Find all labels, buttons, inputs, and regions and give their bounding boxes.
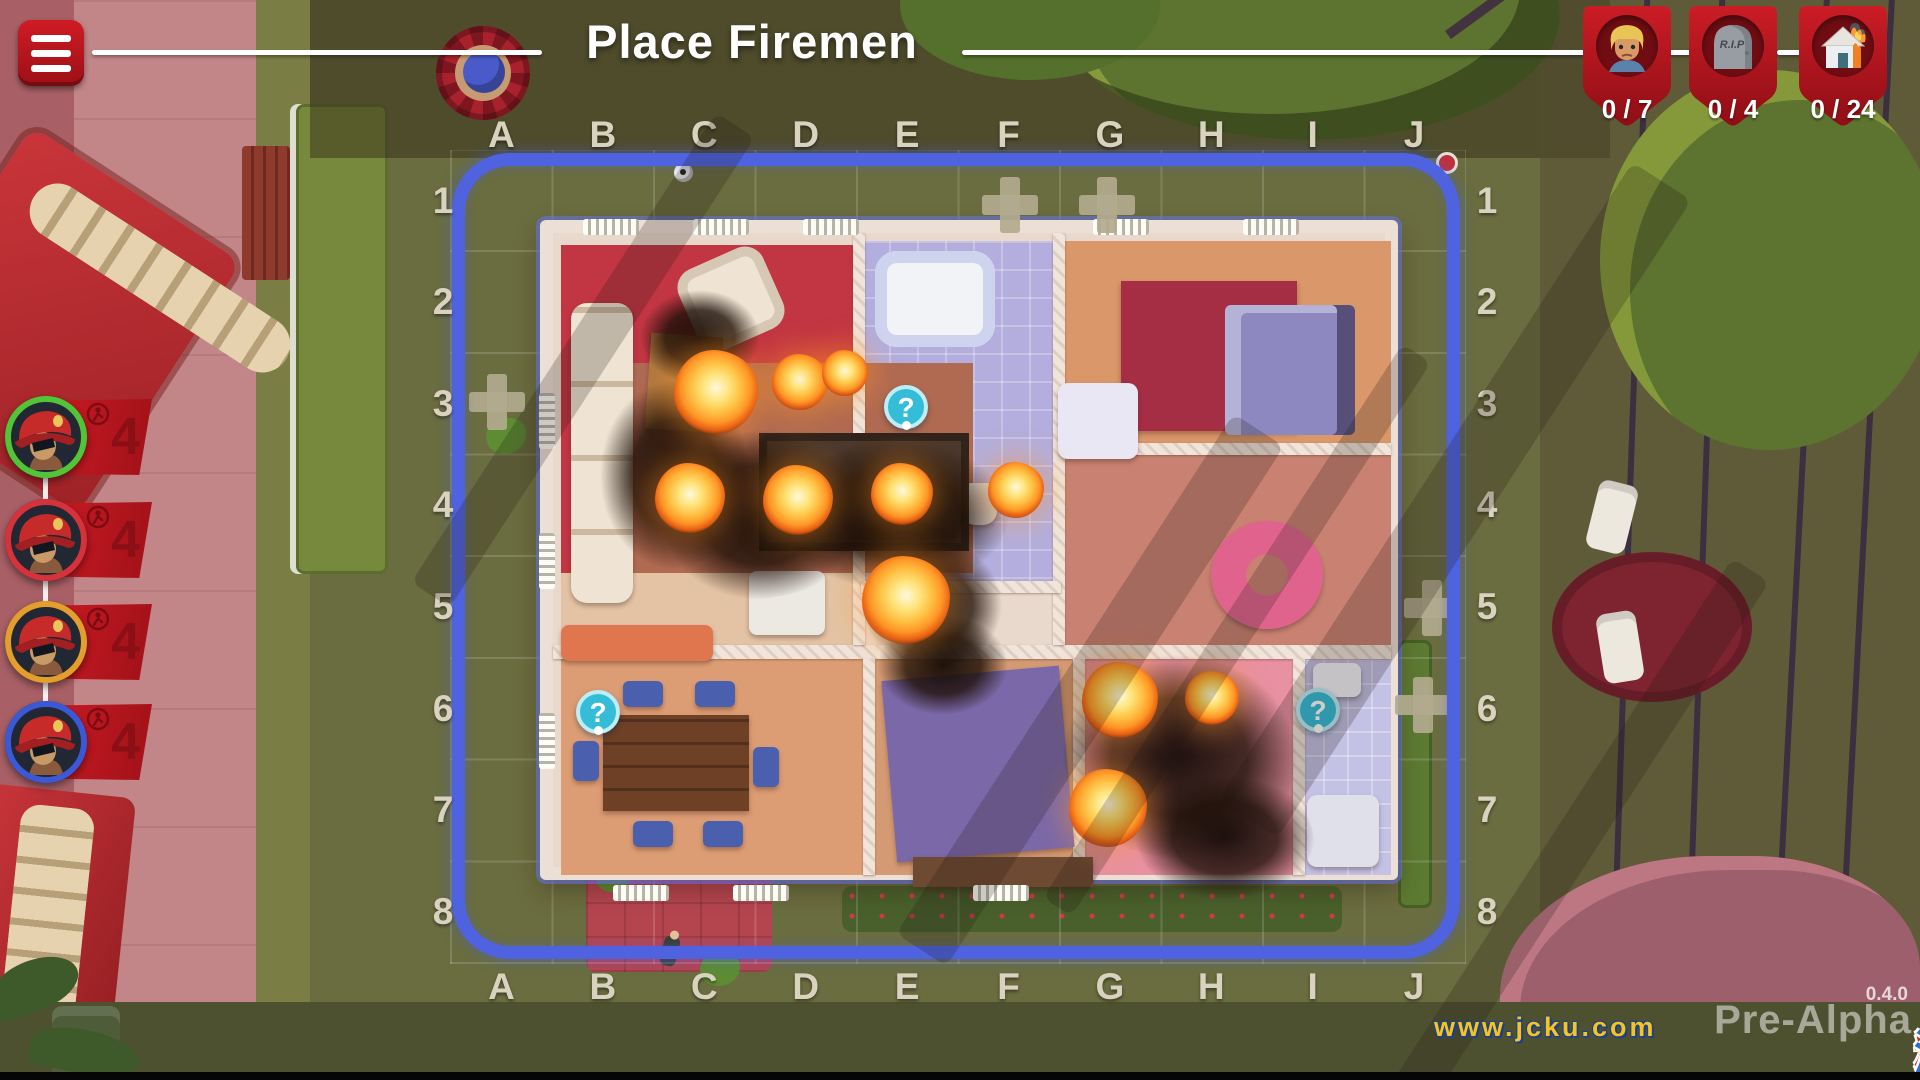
survivors-count: 0 / 7 <box>1583 94 1671 125</box>
grid-column-label: F <box>979 112 1039 158</box>
hedge <box>296 104 388 574</box>
grid-row-label: 4 <box>1457 482 1517 528</box>
grid-column-label: I <box>1283 112 1343 158</box>
grid-row-label: 5 <box>413 584 473 630</box>
game-screen: ??? ABCDEFGHIJ ABCDEFGHIJ 12345678 12345… <box>0 0 1920 1080</box>
fireman-token[interactable] <box>5 601 87 683</box>
badge-icon-circle <box>1812 15 1874 77</box>
grid-column-label: E <box>877 112 937 158</box>
fireman-action-points: 4 <box>111 510 140 570</box>
title-rule-right <box>962 50 1588 55</box>
burned-count: 0 / 24 <box>1799 94 1887 125</box>
grid-row-label: 8 <box>413 889 473 935</box>
grid-column-label: C <box>674 112 734 158</box>
watermark-url: www.jcku.com <box>1434 1012 1657 1043</box>
grid-row-labels-left: 12345678 <box>413 0 473 1080</box>
grid-row-label: 7 <box>1457 787 1517 833</box>
roster-connector-line <box>43 437 48 743</box>
fireman-portrait <box>5 601 87 683</box>
grid-row-label: 8 <box>1457 889 1517 935</box>
fireman-portrait <box>5 396 87 478</box>
fireman-action-points: 4 <box>111 612 140 672</box>
fireman-portrait <box>5 499 87 581</box>
page-title: Place Firemen <box>552 14 952 69</box>
grid-row-label: 6 <box>413 686 473 732</box>
grid-row-labels-right: 12345678 <box>1457 0 1517 1080</box>
grid-column-label: A <box>472 964 532 1010</box>
fireman-token[interactable] <box>5 701 87 783</box>
stat-badge-survivors: 0 / 7 <box>1583 6 1671 128</box>
fireman-action-points: 4 <box>111 407 140 467</box>
grid-row-label: 3 <box>413 381 473 427</box>
grid-row-label: 7 <box>413 787 473 833</box>
build-label: Pre-Alpha <box>1714 998 1912 1043</box>
gravestone-icon: R.I.P <box>1707 20 1759 72</box>
grid-row-label: 1 <box>1457 178 1517 224</box>
grid-column-labels-bottom: ABCDEFGHIJ <box>0 964 1920 1010</box>
title-rule-left <box>92 50 542 55</box>
grid-column-label: D <box>776 964 836 1010</box>
grid-column-label: J <box>1384 112 1444 158</box>
fireman-token[interactable] <box>5 396 87 478</box>
grid-column-label: I <box>1283 964 1343 1010</box>
grid-column-label: H <box>1181 112 1241 158</box>
grid-column-label: J <box>1384 964 1444 1010</box>
grid-row-label: 1 <box>413 178 473 224</box>
stat-badge-burned: 0 / 24 <box>1799 6 1887 128</box>
watermark-text-blue: 游戏网 <box>1914 1014 1920 1080</box>
fireman-action-points: 4 <box>111 712 140 772</box>
action-points-icon <box>86 402 110 426</box>
grid-row-label: 4 <box>413 482 473 528</box>
grid-row-label: 2 <box>413 279 473 325</box>
svg-text:R.I.P: R.I.P <box>1720 39 1745 51</box>
hamburger-icon <box>31 65 71 72</box>
grid-column-label: G <box>1080 112 1140 158</box>
hamburger-icon <box>31 35 71 42</box>
survivor-icon <box>1601 20 1653 72</box>
grid-column-label: A <box>472 112 532 158</box>
grid-column-label: F <box>979 964 1039 1010</box>
action-points-icon <box>86 607 110 631</box>
fireman-portrait <box>5 701 87 783</box>
badge-icon-circle <box>1596 15 1658 77</box>
stat-badge-deaths: R.I.P 0 / 4 <box>1689 6 1777 128</box>
letterbox-bar <box>0 1072 1920 1080</box>
park-bench <box>242 146 290 280</box>
menu-button[interactable] <box>18 20 84 86</box>
deaths-count: 0 / 4 <box>1689 94 1777 125</box>
grid-column-label: D <box>776 112 836 158</box>
badge-icon-circle: R.I.P <box>1702 15 1764 77</box>
action-points-icon <box>86 707 110 731</box>
grid-row-label: 6 <box>1457 686 1517 732</box>
grid-column-label: C <box>674 964 734 1010</box>
grid-column-label: B <box>573 964 633 1010</box>
grid-column-label: E <box>877 964 937 1010</box>
grid-row-label: 3 <box>1457 381 1517 427</box>
fireman-token[interactable] <box>5 499 87 581</box>
grid-column-label: G <box>1080 964 1140 1010</box>
grid-row-label: 2 <box>1457 279 1517 325</box>
grid-column-label: B <box>573 112 633 158</box>
grid-row-label: 5 <box>1457 584 1517 630</box>
burning-house-icon <box>1817 20 1869 72</box>
round-patio <box>1552 552 1752 702</box>
grid-column-label: H <box>1181 964 1241 1010</box>
board-border <box>452 153 1460 959</box>
action-points-icon <box>86 505 110 529</box>
hamburger-icon <box>31 50 71 57</box>
